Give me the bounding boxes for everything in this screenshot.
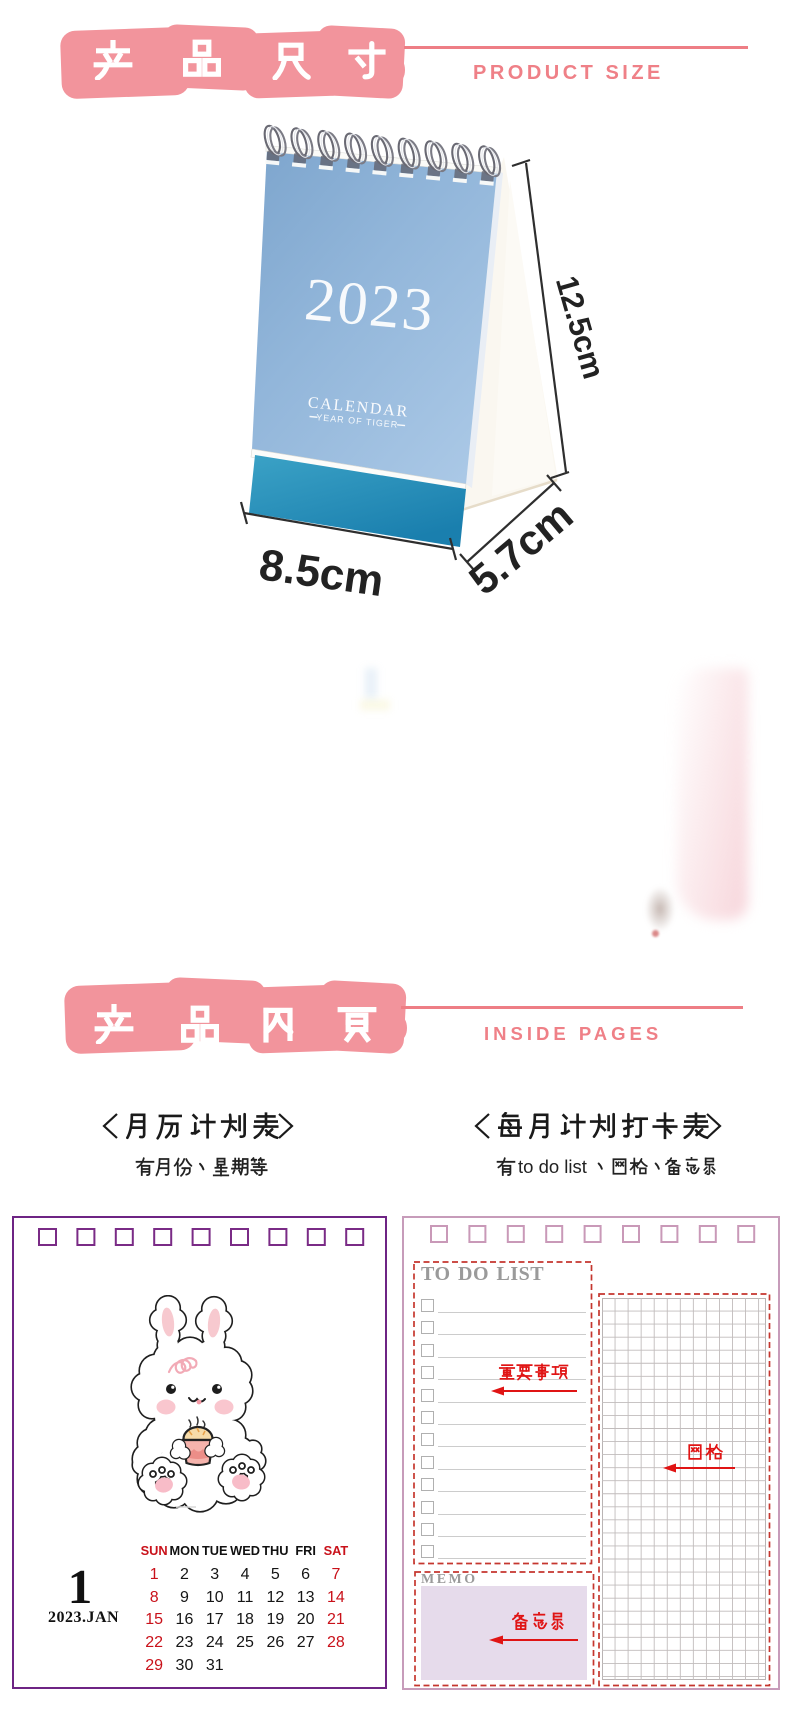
svg-text:to do list: to do list [518, 1156, 587, 1177]
svg-text:8.5cm: 8.5cm [256, 540, 386, 600]
svg-text:12.5cm: 12.5cm [549, 272, 600, 383]
svg-text:2023: 2023 [302, 266, 438, 345]
svg-text:5.7cm: 5.7cm [460, 491, 581, 600]
